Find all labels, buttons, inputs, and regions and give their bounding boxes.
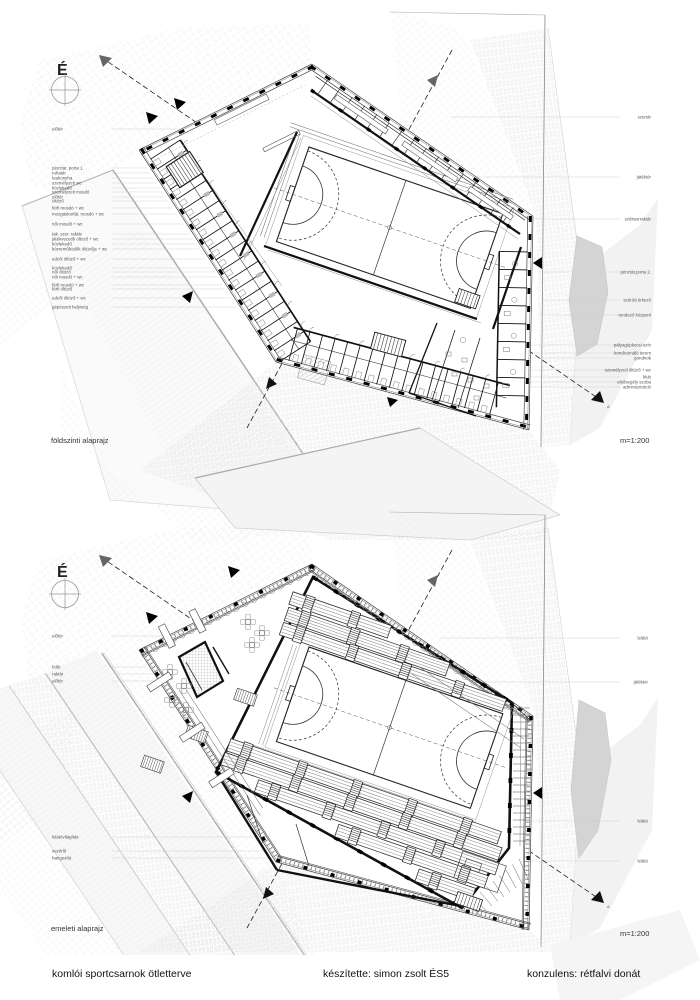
svg-text:szertár: szertár (638, 115, 652, 120)
svg-text:mozgáskorlát. mosdó + wc: mozgáskorlát. mosdó + wc (52, 212, 105, 217)
svg-text:hangosító: hangosító (52, 856, 72, 861)
svg-text:gondnok: gondnok (634, 356, 652, 361)
svg-text:öltöző: öltöző (52, 199, 64, 204)
svg-text:A: A (607, 904, 610, 909)
svg-text:m=1:200: m=1:200 (620, 929, 649, 938)
svg-text:széksorraktár: széksorraktár (625, 217, 652, 222)
svg-text:m=1:200: m=1:200 (620, 436, 649, 445)
svg-text:szúród érkező: szúród érkező (623, 298, 651, 303)
svg-text:emeleti alaprajz: emeleti alaprajz (51, 924, 104, 933)
svg-text:földszinti alaprajz: földszinti alaprajz (51, 436, 109, 445)
svg-text:női mosdó + wc: női mosdó + wc (52, 275, 83, 280)
svg-text:pénztár,porta 2.: pénztár,porta 2. (620, 270, 651, 275)
svg-text:rendező központ: rendező központ (619, 313, 652, 318)
svg-text:előtér: előtér (52, 679, 64, 684)
svg-text:lelátó: lelátó (638, 859, 649, 864)
svg-text:személyzeti öltöző + wc: személyzeti öltöző + wc (605, 368, 652, 373)
svg-text:lelátó: lelátó (638, 636, 649, 641)
svg-text:játéktér: játéktér (636, 175, 652, 180)
svg-text:raktár: raktár (52, 672, 64, 677)
svg-text:női mosdó + wc: női mosdó + wc (52, 222, 83, 227)
svg-text:férfi mosdó + wc: férfi mosdó + wc (52, 206, 85, 211)
svg-text:konzulens: rétfalvi donát: konzulens: rétfalvi donát (527, 968, 640, 980)
svg-text:pályagépkocsi szín: pályagépkocsi szín (614, 343, 652, 348)
svg-text:É: É (57, 60, 68, 79)
svg-text:komlói sportcsarnok ötletterve: komlói sportcsarnok ötletterve (52, 968, 192, 980)
svg-text:edzői öltöző + wc: edzői öltöző + wc (52, 257, 87, 262)
svg-text:adminisztráció: adminisztráció (623, 385, 652, 390)
svg-text:büfé: büfé (52, 665, 61, 670)
svg-text:közreműködők öltözője + wc: közreműködők öltözője + wc (52, 247, 108, 252)
svg-text:gépészeti helyiség: gépészeti helyiség (52, 305, 89, 310)
svg-text:előtér: előtér (52, 127, 64, 132)
svg-text:játéktér: játéktér (633, 680, 649, 685)
svg-text:edzői öltöző + wc: edzői öltöző + wc (52, 296, 87, 301)
svg-text:készítette: simon zsolt ÉS5: készítette: simon zsolt ÉS5 (323, 967, 449, 980)
svg-text:lelátóvilágítás: lelátóvilágítás (52, 835, 79, 840)
svg-text:A: A (607, 404, 610, 409)
svg-text:lelátó: lelátó (638, 819, 649, 824)
svg-text:előtér: előtér (52, 634, 64, 639)
svg-text:É: É (57, 562, 68, 581)
svg-text:vezérlő: vezérlő (52, 849, 67, 854)
svg-text:férfi öltöző: férfi öltöző (52, 287, 73, 292)
